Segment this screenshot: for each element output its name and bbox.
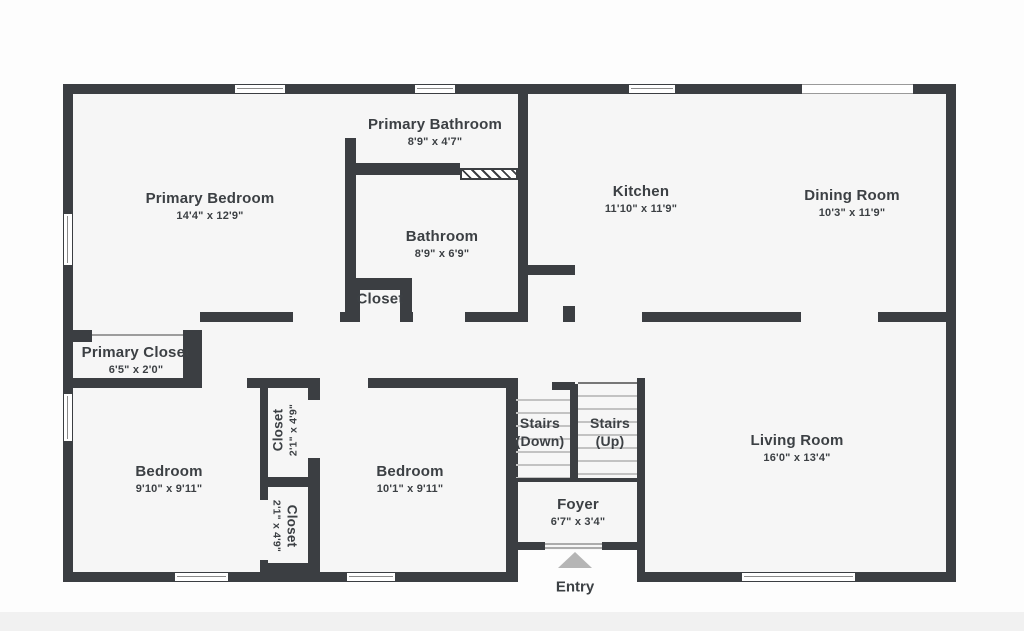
entry-door-sill-inner xyxy=(545,547,602,549)
wall-hallway-bottom-3 xyxy=(368,378,506,388)
wall-dining-living-divider-east xyxy=(878,312,956,322)
window-dining-room-top xyxy=(802,84,913,94)
wall-primary-bath-bottom xyxy=(345,163,460,175)
wall-pantry-nook-right xyxy=(563,306,575,322)
hatched-half-wall xyxy=(460,168,518,180)
room-label-dining-room: Dining Room 10'3" x 11'9" xyxy=(804,186,900,220)
room-label-living-room: Living Room 16'0" x 13'4" xyxy=(750,431,843,465)
window-bedroom1-bottom xyxy=(173,572,230,582)
wall-closets-divider xyxy=(260,477,320,487)
room-label-bathroom: Bathroom 8'9" x 6'9" xyxy=(406,227,478,261)
window-living-room-bottom xyxy=(740,572,857,582)
wall-hallway-top-3 xyxy=(400,312,413,322)
bottom-edge-strip xyxy=(0,612,1024,631)
entry-door-sill-outer xyxy=(545,543,602,545)
wall-stairs-middle xyxy=(570,384,578,480)
window-primary-bedroom-top xyxy=(233,84,287,94)
wall-closet1-left xyxy=(260,388,268,477)
room-label-foyer: Foyer 6'7" x 3'4" xyxy=(551,495,606,529)
wall-hallway-top-1 xyxy=(200,312,293,322)
wall-kitchen-west xyxy=(518,94,528,322)
wall-living-room-left xyxy=(637,378,645,582)
wall-closet2-left-stub-top xyxy=(260,487,268,500)
primary-closet-slider-door xyxy=(92,334,183,336)
entry-arrow-icon xyxy=(558,552,592,568)
room-label-bedroom1: Bedroom 9'10" x 9'11" xyxy=(135,462,202,496)
room-label-bedroom2: Bedroom 10'1" x 9'11" xyxy=(376,462,443,496)
wall-closet1-right-stub-top xyxy=(308,388,320,400)
room-label-closet1: Closet 2'1" x 4'9" xyxy=(269,404,300,456)
wall-pantry-nook-top xyxy=(518,265,575,275)
wall-exterior-right xyxy=(946,84,956,582)
wall-stairs-foyer-divider xyxy=(512,478,637,482)
entry-label: Entry xyxy=(556,579,594,596)
room-label-kitchen: Kitchen 11'10" x 11'9" xyxy=(605,182,677,216)
window-primary-bathroom-top xyxy=(413,84,457,94)
room-label-closet2: Closet 2'1" x 4'9" xyxy=(269,500,300,552)
room-label-stairs-up: Stairs (Up) xyxy=(590,414,630,450)
window-kitchen-top xyxy=(627,84,677,94)
wall-hallway-bottom-2 xyxy=(247,378,260,388)
window-bedroom1-left xyxy=(63,392,73,443)
wall-dining-living-divider-west xyxy=(642,312,801,322)
room-label-primary-closet: Primary Closet 6'5" x 2'0" xyxy=(82,343,191,377)
wall-closet2-right xyxy=(308,487,320,575)
room-label-hall-closet: Closet xyxy=(356,289,403,309)
window-primary-bedroom-left xyxy=(63,212,73,267)
window-bedroom2-bottom xyxy=(345,572,397,582)
room-label-primary-bathroom: Primary Bathroom 8'9" x 4'7" xyxy=(368,115,502,149)
floorplan-canvas: Primary Bedroom 14'4" x 12'9" Primary Ba… xyxy=(0,0,1024,631)
wall-hallway-top-2 xyxy=(340,312,360,322)
wall-hallway-bottom-1 xyxy=(63,378,202,388)
room-label-stairs-down: Stairs (Down) xyxy=(516,414,565,450)
wall-closet1-top xyxy=(260,378,320,388)
room-label-primary-bedroom: Primary Bedroom 14'4" x 12'9" xyxy=(146,189,275,223)
wall-hallway-top-4 xyxy=(465,312,520,322)
wall-closet1-right-stub-bottom xyxy=(308,458,320,477)
wall-foyer-bottom-left xyxy=(506,542,545,550)
wall-closet2-bottom xyxy=(260,563,320,575)
wall-foyer-bottom-right xyxy=(602,542,645,550)
wall-primary-closet-top-stub xyxy=(63,330,92,342)
